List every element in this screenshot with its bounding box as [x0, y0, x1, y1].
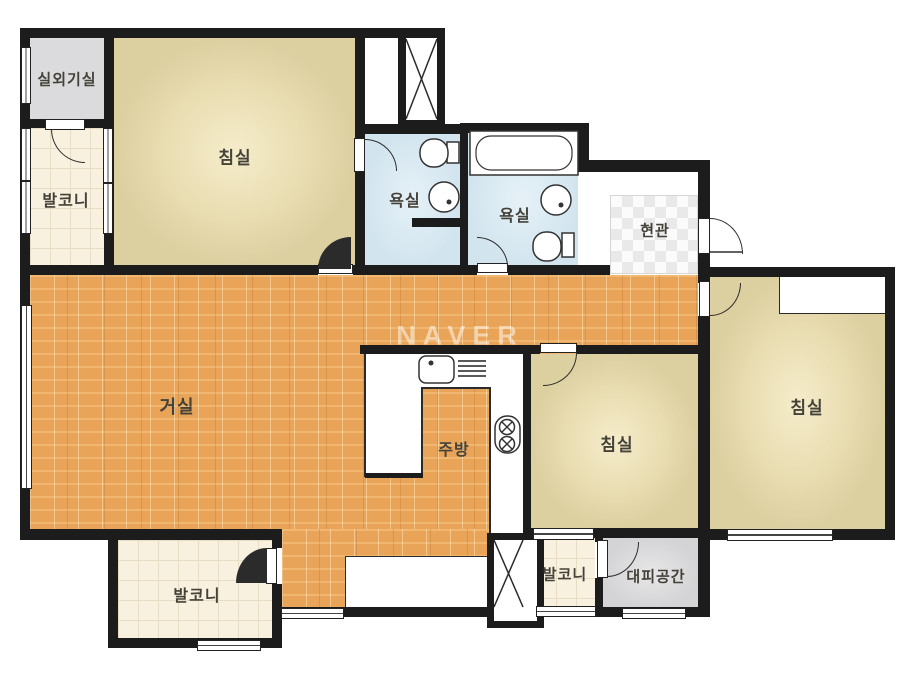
counter-edge [421, 387, 423, 475]
wall-segment [355, 124, 468, 134]
room-label-bathroom-1: 욕실 [389, 187, 420, 211]
counter-edge [421, 387, 491, 389]
door-panel [540, 343, 577, 353]
window [103, 128, 113, 183]
window [197, 640, 261, 651]
room-label-shelter: 대피공간 [626, 566, 685, 587]
kitchen-side-strip [491, 388, 523, 535]
wall-segment [460, 123, 589, 133]
wall-segment [355, 28, 365, 139]
wall-segment [460, 128, 468, 274]
wall-segment [831, 529, 895, 540]
room-label-balcony-left: 발코니 [42, 187, 89, 211]
wall-segment [698, 160, 710, 218]
kitchen-counter-left [366, 388, 421, 474]
counter-end-bar [365, 473, 423, 478]
counter-edge [364, 353, 366, 477]
naver-watermark: NAVER [396, 321, 524, 352]
window [21, 181, 31, 234]
door-panel [354, 138, 365, 172]
room-label-bedroom-top-left: 침실 [218, 144, 251, 169]
wall-segment [698, 267, 895, 277]
room-label-outdoor-unit: 실외기실 [37, 69, 96, 90]
wall-segment [578, 160, 710, 172]
wall-segment [272, 529, 282, 548]
wall-segment [20, 28, 445, 38]
room-label-balcony-bottom-middle: 발코니 [543, 564, 587, 585]
wall-segment [108, 538, 118, 648]
wall-segment [412, 218, 468, 227]
wall-segment [398, 30, 406, 129]
wall-segment [20, 529, 282, 540]
wall-segment [595, 578, 603, 612]
window [536, 606, 596, 617]
door-panel [699, 281, 710, 317]
room-label-bathroom-2: 욕실 [499, 202, 530, 226]
window [21, 47, 31, 104]
door-panel [266, 548, 277, 584]
front-door-panel [698, 218, 710, 254]
window [21, 305, 32, 489]
wall-segment [577, 345, 710, 354]
window [533, 528, 594, 540]
room-label-entrance: 현관 [640, 220, 670, 241]
window [622, 608, 686, 619]
wall-segment [508, 265, 610, 275]
bedroom-right-closet [779, 277, 886, 314]
window [103, 183, 113, 234]
room-label-living: 거실 [159, 393, 194, 419]
room-label-kitchen: 주방 [438, 436, 469, 460]
wall-segment [885, 267, 895, 540]
wall-segment [523, 345, 531, 538]
wall-segment [353, 265, 477, 275]
wall-segment [437, 30, 445, 129]
wall-segment [698, 316, 710, 617]
window [281, 608, 344, 619]
kitchen-counter-top [366, 353, 523, 388]
window [727, 529, 833, 541]
wall-segment [355, 171, 365, 274]
built-in-storage [345, 556, 489, 609]
floor-plan: 실외기실 발코니 침실 욕실 욕실 현관 거실 주방 침실 침실 발코니 발코니… [0, 0, 923, 676]
room-label-balcony-bottom-left: 발코니 [173, 582, 220, 606]
wall-segment [20, 265, 318, 275]
window [21, 128, 31, 181]
room-label-bedroom-right: 침실 [790, 394, 823, 419]
room-label-bedroom-middle: 침실 [600, 431, 633, 456]
front-door-swing [710, 218, 743, 254]
counter-edge [489, 387, 491, 535]
